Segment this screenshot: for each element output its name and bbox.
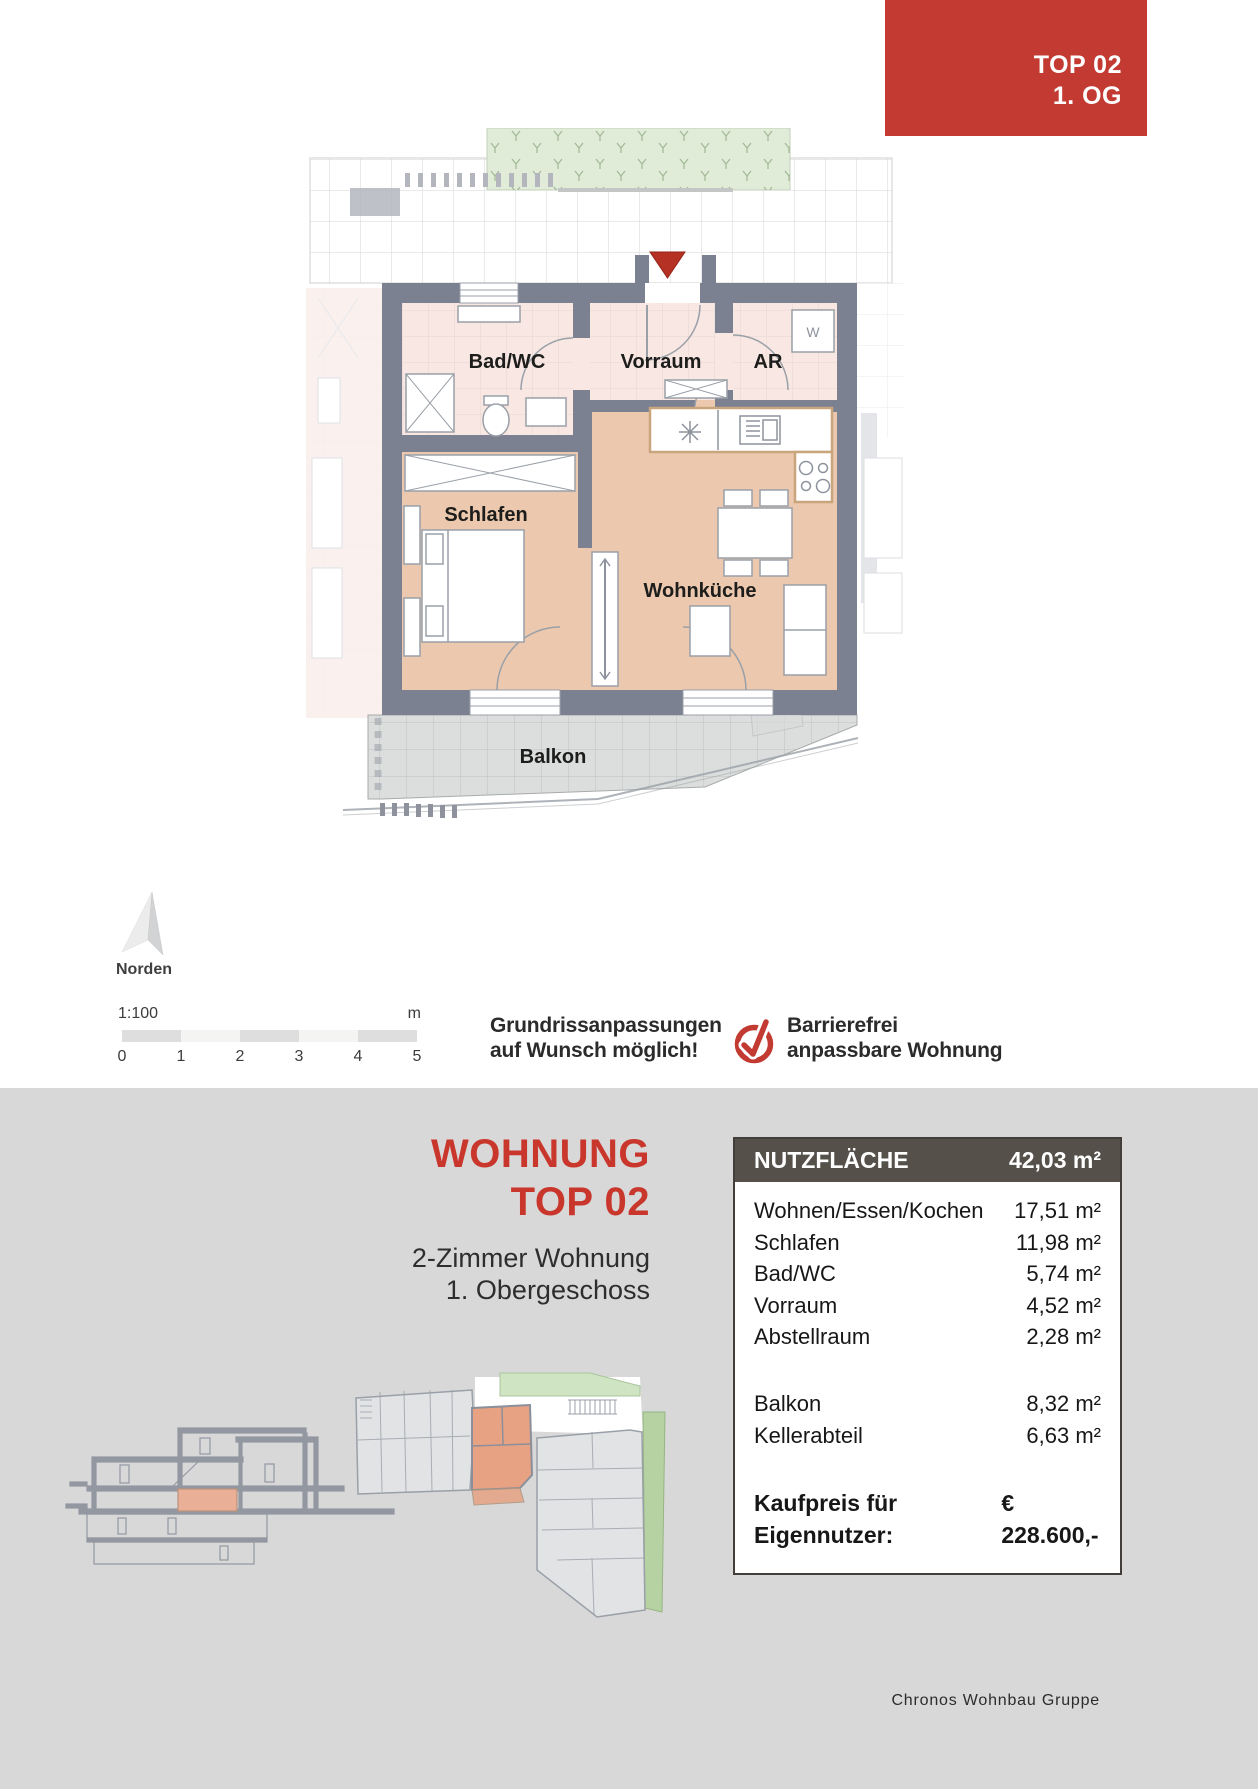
floor-plan-drawing: W (298, 128, 904, 840)
row-label: Kellerabteil (754, 1420, 863, 1452)
table-row: Bad/WC 5,74 m² (754, 1258, 1101, 1290)
note-line2: auf Wunsch möglich! (490, 1038, 722, 1063)
row-value: 5,74 m² (1026, 1258, 1101, 1290)
area-table: NUTZFLÄCHE 42,03 m² Wohnen/Essen/Kochen … (733, 1137, 1122, 1575)
row-label: Vorraum (754, 1290, 837, 1322)
floorplan-note: Grundrissanpassungen auf Wunsch möglich! (490, 1013, 722, 1063)
room-label-vorraum: Vorraum (621, 351, 702, 373)
scale-segment (240, 1030, 299, 1042)
row-value: 11,98 m² (1016, 1227, 1101, 1259)
listing-subtitle-line2: 1. Obergeschoss (250, 1274, 650, 1306)
area-table-header-label: NUTZFLÄCHE (754, 1147, 909, 1174)
neighbour-apartment-left (306, 288, 382, 718)
room-label-schlafen: Schlafen (444, 504, 527, 526)
scale-segment (122, 1030, 181, 1042)
price-row: Kaufpreis für Eigennutzer: € 228.600,- (754, 1488, 1101, 1551)
scale-tick: 4 (348, 1048, 368, 1066)
highlighted-unit-section (178, 1489, 237, 1511)
scale-tick: 1 (171, 1048, 191, 1066)
scale-tick: 5 (407, 1048, 427, 1066)
price-value: € 228.600,- (1001, 1488, 1101, 1551)
scale-segment (299, 1030, 358, 1042)
room-label-wohnkueche: Wohnküche (644, 580, 757, 602)
table-row: Wohnen/Essen/Kochen 17,51 m² (754, 1195, 1101, 1227)
brochure-page: TOP 02 1. OG (0, 0, 1258, 1789)
row-value: 2,28 m² (1026, 1321, 1101, 1353)
green-strip-top (500, 1373, 640, 1396)
details-section: WOHNUNG TOP 02 2-Zimmer Wohnung 1. Oberg… (0, 1088, 1258, 1789)
company-footer: Chronos Wohnbau Gruppe (800, 1692, 1100, 1710)
dining-table (718, 508, 792, 558)
table-row: Balkon 8,32 m² (754, 1388, 1101, 1420)
table-row: Abstellraum 2,28 m² (754, 1321, 1101, 1353)
row-label: Abstellraum (754, 1321, 870, 1353)
scale-tick: 2 (230, 1048, 250, 1066)
scale-tick-labels: 0 1 2 3 4 5 (112, 1048, 427, 1068)
accessibility-line1: Barrierefrei (787, 1013, 1002, 1038)
table-row: Vorraum 4,52 m² (754, 1290, 1101, 1322)
row-value: 4,52 m² (1026, 1290, 1101, 1322)
scale-segment (181, 1030, 240, 1042)
row-value: 17,51 m² (1014, 1195, 1101, 1227)
listing-title-line1: WOHNUNG (250, 1130, 650, 1178)
unit-banner-floor: 1. OG (885, 81, 1122, 112)
highlighted-unit-plan (472, 1405, 532, 1505)
scale-tick: 3 (289, 1048, 309, 1066)
row-label: Wohnen/Essen/Kochen (754, 1195, 984, 1227)
row-label: Schlafen (754, 1227, 840, 1259)
row-label: Bad/WC (754, 1258, 836, 1290)
row-value: 6,63 m² (1026, 1420, 1101, 1452)
area-table-header-value: 42,03 m² (1009, 1147, 1101, 1174)
price-label: Kaufpreis für Eigennutzer: (754, 1488, 1001, 1551)
listing-title-line2: TOP 02 (250, 1178, 650, 1226)
north-arrow-icon (112, 886, 168, 962)
accessibility-check-icon (731, 1008, 777, 1074)
scale-unit: m (391, 1005, 421, 1023)
table-row: Kellerabteil 6,63 m² (754, 1420, 1101, 1452)
terrace-block (350, 188, 400, 216)
listing-subtitle: 2-Zimmer Wohnung 1. Obergeschoss (250, 1242, 650, 1306)
unit-banner-top: TOP 02 (885, 50, 1122, 81)
north-label: Norden (116, 961, 172, 979)
neighbour-apartment-right (861, 413, 902, 633)
table-row: Schlafen 11,98 m² (754, 1227, 1101, 1259)
area-table-header: NUTZFLÄCHE 42,03 m² (735, 1139, 1120, 1182)
row-value: 8,32 m² (1026, 1388, 1101, 1420)
green-strip-right (643, 1412, 665, 1612)
listing-heading: WOHNUNG TOP 02 2-Zimmer Wohnung 1. Oberg… (250, 1130, 650, 1306)
accessibility-note: Barrierefrei anpassbare Wohnung (787, 1013, 1002, 1063)
washing-machine-label: W (806, 324, 820, 340)
side-table (690, 606, 730, 656)
room-label-balkon: Balkon (520, 746, 587, 768)
unit-banner: TOP 02 1. OG (885, 0, 1147, 136)
scale-segment (358, 1030, 417, 1042)
listing-subtitle-line1: 2-Zimmer Wohnung (250, 1242, 650, 1274)
area-table-body: Wohnen/Essen/Kochen 17,51 m² Schlafen 11… (735, 1182, 1120, 1573)
scale-ratio: 1:100 (118, 1005, 158, 1023)
room-label-ar: AR (754, 351, 783, 373)
row-label: Balkon (754, 1388, 821, 1420)
scale-tick: 0 (112, 1048, 132, 1066)
left-wing (356, 1390, 474, 1494)
washbasin (526, 398, 566, 426)
right-wing (537, 1430, 645, 1617)
building-section-drawing (60, 1400, 400, 1600)
room-label-bad: Bad/WC (469, 351, 546, 373)
green-landscape (487, 128, 790, 192)
scale-bar (122, 1030, 417, 1042)
site-plan-drawing (352, 1370, 702, 1670)
accessibility-line2: anpassbare Wohnung (787, 1038, 1002, 1063)
sliding-door (592, 552, 618, 686)
note-line1: Grundrissanpassungen (490, 1013, 722, 1038)
